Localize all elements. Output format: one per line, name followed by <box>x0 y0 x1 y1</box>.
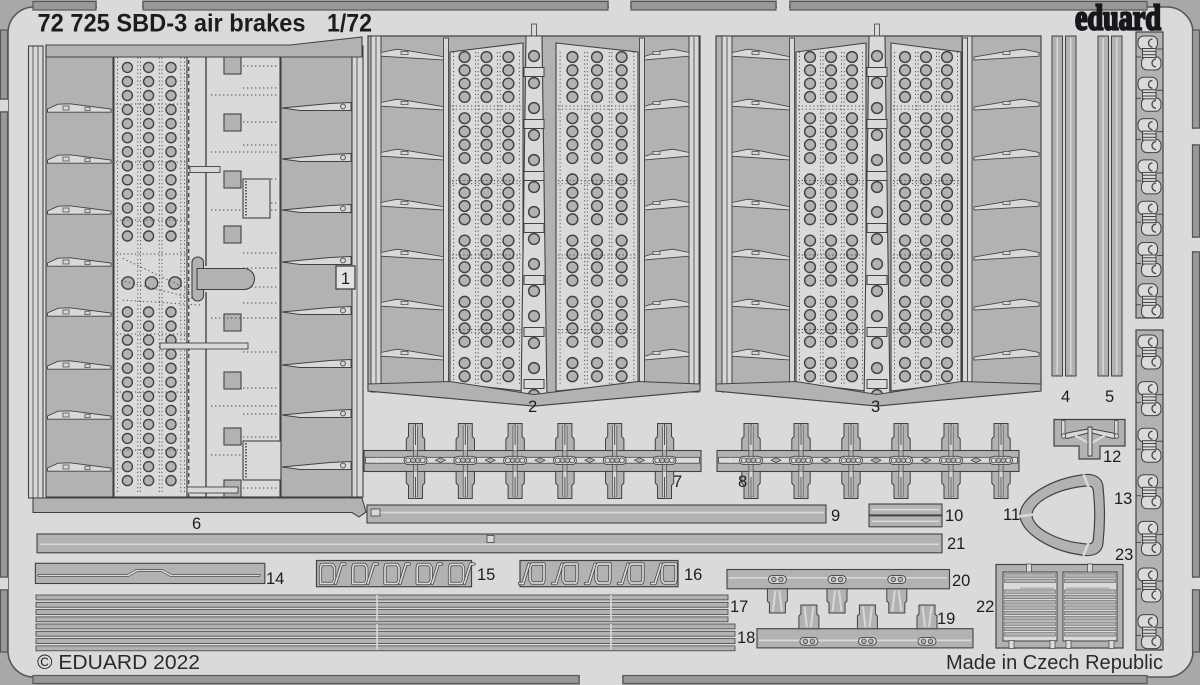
svg-text:19: 19 <box>937 610 955 628</box>
svg-text:1/72: 1/72 <box>327 10 372 38</box>
svg-text:3: 3 <box>871 398 880 416</box>
svg-text:9: 9 <box>831 507 840 525</box>
svg-text:15: 15 <box>477 566 495 584</box>
svg-text:21: 21 <box>947 535 965 553</box>
svg-text:8: 8 <box>738 473 747 491</box>
svg-text:11: 11 <box>1003 506 1020 524</box>
svg-text:72 725 SBD-3 air brakes: 72 725 SBD-3 air brakes <box>38 10 306 38</box>
svg-text:7: 7 <box>673 473 682 491</box>
svg-text:20: 20 <box>952 572 970 590</box>
svg-text:18: 18 <box>737 629 755 647</box>
svg-text:4: 4 <box>1061 388 1070 406</box>
svg-text:5: 5 <box>1105 388 1114 406</box>
svg-text:17: 17 <box>730 598 748 616</box>
svg-text:2: 2 <box>528 398 537 416</box>
svg-text:23: 23 <box>1115 546 1133 564</box>
svg-text:16: 16 <box>684 566 702 584</box>
svg-text:6: 6 <box>192 515 201 533</box>
svg-text:10: 10 <box>945 507 963 525</box>
svg-text:22: 22 <box>976 598 994 616</box>
svg-text:12: 12 <box>1103 448 1121 466</box>
svg-text:13: 13 <box>1114 490 1132 508</box>
svg-text:14: 14 <box>266 570 284 588</box>
svg-text:1: 1 <box>341 270 350 288</box>
svg-text:Made in Czech Republic: Made in Czech Republic <box>946 652 1163 674</box>
svg-text:© EDUARD 2022: © EDUARD 2022 <box>37 652 200 674</box>
